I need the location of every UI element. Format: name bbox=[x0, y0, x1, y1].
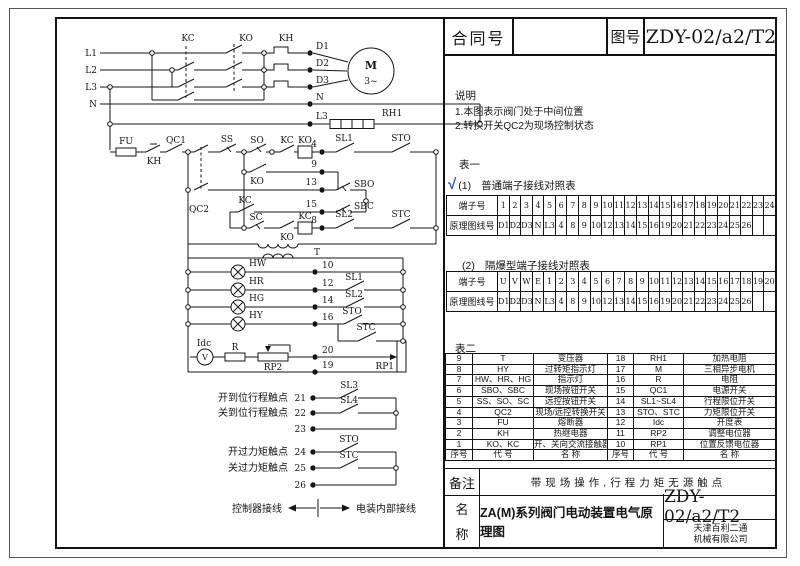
terminal-cell: 11 bbox=[660, 272, 672, 292]
component-row: 2KH热继电器11RP2调整电位器 bbox=[446, 428, 776, 439]
component-cell: 代 号 bbox=[634, 450, 684, 461]
terminal-cell: 21 bbox=[729, 196, 741, 216]
terminal-cell: 22 bbox=[694, 292, 706, 312]
table1-heading: 表一 bbox=[459, 157, 480, 172]
component-cell: 1 bbox=[446, 439, 473, 450]
terminal-cell: 16 bbox=[648, 292, 660, 312]
terminal-cell: 7 bbox=[567, 196, 579, 216]
name-label-char: 称 bbox=[455, 524, 468, 543]
component-cell: 熔断器 bbox=[534, 418, 608, 429]
company-line: 天津百利二通 bbox=[693, 523, 747, 534]
terminal-cell: 5 bbox=[590, 272, 602, 292]
component-cell: 13 bbox=[608, 407, 634, 418]
wire-row: 原理图线号 D1D2D3NL34891012131415161920212223… bbox=[447, 216, 776, 236]
component-row: 7HW、HR、HG指示灯16R电阻 bbox=[446, 375, 776, 386]
component-cell: M bbox=[634, 364, 684, 375]
component-cell: 9 bbox=[446, 354, 473, 365]
remarks-label: 备注 bbox=[445, 469, 480, 495]
component-cell: 过转矩指示灯 bbox=[534, 364, 608, 375]
component-table: 9T变压器18RH1加热电阻8HY过转矩指示灯17M三相异步电机7HW、HR、H… bbox=[445, 353, 776, 461]
terminal-cell: D3 bbox=[521, 216, 533, 236]
sub2-number: (2) bbox=[462, 260, 475, 272]
terminal-cell: 15 bbox=[660, 196, 672, 216]
terminal-cell: 24 bbox=[764, 196, 776, 216]
terminal-cell: 9 bbox=[579, 292, 591, 312]
terminal-cell: W bbox=[521, 272, 533, 292]
component-cell: 名 称 bbox=[534, 450, 608, 461]
terminal-cell: 21 bbox=[683, 292, 695, 312]
terminal-cell: 17 bbox=[729, 272, 741, 292]
terminal-cell: 2 bbox=[555, 272, 567, 292]
terminal-row: 端子号 123456789101112131415161718192021222… bbox=[447, 196, 776, 216]
terminal-cell: 26 bbox=[741, 216, 753, 236]
terminal-cell: 14 bbox=[648, 196, 660, 216]
component-cell: RP1 bbox=[634, 439, 684, 450]
terminal-cell: 18 bbox=[694, 196, 706, 216]
terminal-cell: 5 bbox=[544, 196, 556, 216]
component-cell: 3 bbox=[446, 418, 473, 429]
terminal-cell bbox=[752, 216, 764, 236]
component-cell: FU bbox=[473, 418, 534, 429]
row-label: 端子号 bbox=[447, 196, 498, 216]
contract-label: 合同号 bbox=[445, 19, 514, 54]
component-row: 9T变压器18RH1加热电阻 bbox=[446, 354, 776, 365]
terminal-cell: 13 bbox=[683, 272, 695, 292]
component-cell: 11 bbox=[608, 428, 634, 439]
component-row: 5SS、SO、SC远控按钮开关14SL1~SL4行程限位开关 bbox=[446, 396, 776, 407]
terminal-cell: 9 bbox=[579, 216, 591, 236]
drawing-frame: 合同号 图号 ZDY-02/a2/T2 说明 1.本图表示阀门处于中间位置 2.… bbox=[55, 17, 777, 549]
terminal-cell: 13 bbox=[636, 196, 648, 216]
terminal-cell: 23 bbox=[706, 216, 718, 236]
component-cell: 现场/远控转换开关 bbox=[534, 407, 608, 418]
component-cell: SBO、SBC bbox=[473, 386, 534, 397]
terminal-cell: 4 bbox=[532, 196, 544, 216]
component-cell: RH1 bbox=[634, 354, 684, 365]
terminal-cell: 12 bbox=[602, 216, 614, 236]
component-cell: 序号 bbox=[608, 450, 634, 461]
terminal-cell: 16 bbox=[717, 272, 729, 292]
component-cell: 2 bbox=[446, 428, 473, 439]
component-row: 3FU熔断器12Idc开度表 bbox=[446, 418, 776, 429]
terminal-cell: 22 bbox=[741, 196, 753, 216]
terminal-cell: 14 bbox=[694, 272, 706, 292]
terminal-cell: 22 bbox=[694, 216, 706, 236]
terminal-cell: 23 bbox=[706, 292, 718, 312]
terminal-cell: D2 bbox=[509, 216, 521, 236]
drawing-title: ZA(M)系列阀门电动装置电气原理图 bbox=[480, 494, 664, 547]
component-cell: 热继电器 bbox=[534, 428, 608, 439]
component-cell: 加热电阻 bbox=[684, 354, 776, 365]
component-cell: KO、KC bbox=[473, 439, 534, 450]
terminal-cell: 10 bbox=[590, 292, 602, 312]
terminal-cell: D3 bbox=[521, 292, 533, 312]
terminal-cell: 20 bbox=[717, 196, 729, 216]
terminal-cell: E bbox=[532, 272, 544, 292]
component-cell: KH bbox=[473, 428, 534, 439]
terminal-cell: 6 bbox=[555, 196, 567, 216]
terminal-cell: 24 bbox=[717, 216, 729, 236]
terminal-cell: 13 bbox=[613, 216, 625, 236]
note-line: 2.转换开关QC2为现场控制状态 bbox=[455, 120, 594, 134]
component-cell: 变压器 bbox=[534, 354, 608, 365]
terminal-cell: 1 bbox=[544, 272, 556, 292]
terminal-cell: 19 bbox=[660, 292, 672, 312]
terminal-cell bbox=[764, 292, 776, 312]
terminal-row: 端子号 UVWE1234567891011121314151617181920 bbox=[447, 272, 776, 292]
terminal-cell: 15 bbox=[706, 272, 718, 292]
terminal-cell: D1 bbox=[498, 216, 510, 236]
component-row: 1KO、KC开、关向交流接触器10RP1位置反馈电位器 bbox=[446, 439, 776, 450]
wire-row: 原理图线号 D1D2D3NL34891012131415161920212223… bbox=[447, 292, 776, 312]
terminal-cell: 24 bbox=[717, 292, 729, 312]
terminal-cell: L3 bbox=[544, 292, 556, 312]
drawing-no-bottom: ZDY-02/a2/T2 bbox=[664, 494, 777, 520]
terminal-cell: 23 bbox=[752, 196, 764, 216]
component-cell: SL1~SL4 bbox=[634, 396, 684, 407]
component-cell: T bbox=[473, 354, 534, 365]
notes-heading: 说明 bbox=[455, 89, 594, 103]
terminal-cell: 16 bbox=[648, 216, 660, 236]
component-cell: 开度表 bbox=[684, 418, 776, 429]
terminal-cell: 13 bbox=[613, 292, 625, 312]
terminal-cell: D1 bbox=[498, 292, 510, 312]
terminal-cell: 25 bbox=[729, 216, 741, 236]
terminal-cell: 14 bbox=[625, 216, 637, 236]
component-cell: SS、SO、SC bbox=[473, 396, 534, 407]
component-table-body: 9T变压器18RH1加热电阻8HY过转矩指示灯17M三相异步电机7HW、HR、H… bbox=[446, 354, 776, 461]
component-cell: 14 bbox=[608, 396, 634, 407]
terminal-cell: 15 bbox=[636, 292, 648, 312]
terminal-cell: 12 bbox=[602, 292, 614, 312]
sub1-text: 普通端子接线对照表 bbox=[481, 178, 576, 193]
component-cell: 15 bbox=[608, 386, 634, 397]
terminal-cell: 4 bbox=[579, 272, 591, 292]
component-cell: 17 bbox=[608, 364, 634, 375]
component-cell: QC2 bbox=[473, 407, 534, 418]
terminal-cell: 11 bbox=[613, 196, 625, 216]
terminal-cell: 8 bbox=[625, 272, 637, 292]
component-row: 序号代 号名 称序号代 号名 称 bbox=[446, 450, 776, 461]
terminal-cell: L3 bbox=[544, 216, 556, 236]
terminal-cell: 8 bbox=[567, 216, 579, 236]
component-cell: 12 bbox=[608, 418, 634, 429]
component-cell: 行程限位开关 bbox=[684, 396, 776, 407]
terminal-cell: 20 bbox=[764, 272, 776, 292]
terminal-cell: 2 bbox=[509, 196, 521, 216]
component-cell: 三相异步电机 bbox=[684, 364, 776, 375]
component-cell: 序号 bbox=[446, 450, 473, 461]
terminal-cell: 8 bbox=[579, 196, 591, 216]
terminal-cell: D2 bbox=[509, 292, 521, 312]
title-panel: 合同号 图号 ZDY-02/a2/T2 说明 1.本图表示阀门处于中间位置 2.… bbox=[443, 19, 777, 547]
component-cell: 电源开关 bbox=[684, 386, 776, 397]
terminal-cell: 19 bbox=[752, 272, 764, 292]
terminal-cell: 10 bbox=[648, 272, 660, 292]
terminal-cell: 10 bbox=[590, 216, 602, 236]
component-cell: 4 bbox=[446, 407, 473, 418]
terminal-table-explosionproof: 端子号 UVWE1234567891011121314151617181920 … bbox=[446, 271, 776, 312]
component-cell: R bbox=[634, 375, 684, 386]
terminal-cell: 3 bbox=[567, 272, 579, 292]
row-label: 原理图线号 bbox=[447, 292, 498, 312]
component-cell: STO、STC bbox=[634, 407, 684, 418]
terminal-cell: N bbox=[532, 292, 544, 312]
terminal-cell: 1 bbox=[498, 196, 510, 216]
component-cell: Idc bbox=[634, 418, 684, 429]
component-cell: 16 bbox=[608, 375, 634, 386]
terminal-cell: 20 bbox=[671, 292, 683, 312]
row-label: 原理图线号 bbox=[447, 216, 498, 236]
notes-block: 说明 1.本图表示阀门处于中间位置 2.转换开关QC2为现场控制状态 bbox=[455, 89, 594, 134]
terminal-cell: 20 bbox=[671, 216, 683, 236]
note-line: 1.本图表示阀门处于中间位置 bbox=[455, 106, 594, 120]
terminal-cell: 8 bbox=[567, 292, 579, 312]
terminal-cell: 9 bbox=[590, 196, 602, 216]
component-cell: 5 bbox=[446, 396, 473, 407]
terminal-cell: 7 bbox=[613, 272, 625, 292]
terminal-cell: 18 bbox=[741, 272, 753, 292]
component-cell: 18 bbox=[608, 354, 634, 365]
terminal-cell: 16 bbox=[671, 196, 683, 216]
terminal-cell: 15 bbox=[636, 216, 648, 236]
component-cell: 代 号 bbox=[473, 450, 534, 461]
company-name: 天津百利二通 机械有限公司 bbox=[664, 520, 777, 547]
row-label: 端子号 bbox=[447, 272, 498, 292]
drawing-no-label: 图号 bbox=[608, 19, 645, 54]
terminal-cell bbox=[764, 216, 776, 236]
drawing-no-value: ZDY-02/a2/T2 bbox=[645, 19, 777, 54]
sub1-number: (1) bbox=[458, 180, 471, 192]
terminal-cell: 19 bbox=[660, 216, 672, 236]
component-cell: HY bbox=[473, 364, 534, 375]
terminal-cell: 26 bbox=[741, 292, 753, 312]
component-cell: 电阻 bbox=[684, 375, 776, 386]
terminal-cell: 12 bbox=[625, 196, 637, 216]
component-cell: 调整电位器 bbox=[684, 428, 776, 439]
contract-value bbox=[514, 19, 608, 54]
terminal-table-ordinary: 端子号 123456789101112131415161718192021222… bbox=[446, 195, 776, 236]
component-row: 4QC2现场/远控转换开关13STO、STC力矩限位开关 bbox=[446, 407, 776, 418]
component-cell: 名 称 bbox=[684, 450, 776, 461]
component-cell: 开、关向交流接触器 bbox=[534, 439, 608, 450]
table1-sub1-title: √ (1) 普通端子接线对照表 bbox=[448, 177, 576, 194]
component-cell: HW、HR、HG bbox=[473, 375, 534, 386]
terminal-cell: 3 bbox=[521, 196, 533, 216]
component-row: 6SBO、SBC现场按钮开关15QC1电源开关 bbox=[446, 386, 776, 397]
component-cell: RP2 bbox=[634, 428, 684, 439]
terminal-cell bbox=[752, 292, 764, 312]
component-cell: 位置反馈电位器 bbox=[684, 439, 776, 450]
name-row: 名 称 ZA(M)系列阀门电动装置电气原理图 ZDY-02/a2/T2 天津百利… bbox=[445, 494, 777, 547]
component-cell: 现场按钮开关 bbox=[534, 386, 608, 397]
component-cell: 7 bbox=[446, 375, 473, 386]
component-cell: QC1 bbox=[634, 386, 684, 397]
component-cell: 力矩限位开关 bbox=[684, 407, 776, 418]
terminal-cell: 25 bbox=[729, 292, 741, 312]
name-label-char: 名 bbox=[455, 499, 468, 518]
terminal-cell: U bbox=[498, 272, 510, 292]
terminal-cell: 4 bbox=[555, 292, 567, 312]
terminal-cell: V bbox=[509, 272, 521, 292]
component-cell: 6 bbox=[446, 386, 473, 397]
terminal-cell: 4 bbox=[555, 216, 567, 236]
name-label: 名 称 bbox=[445, 494, 480, 547]
component-cell: 指示灯 bbox=[534, 375, 608, 386]
terminal-cell: 10 bbox=[602, 196, 614, 216]
component-cell: 10 bbox=[608, 439, 634, 450]
contract-drawing-row: 合同号 图号 ZDY-02/a2/T2 bbox=[445, 19, 777, 56]
company-line: 机械有限公司 bbox=[693, 534, 747, 545]
component-cell: 远控按钮开关 bbox=[534, 396, 608, 407]
terminal-cell: 12 bbox=[671, 272, 683, 292]
terminal-cell: 21 bbox=[683, 216, 695, 236]
component-row: 8HY过转矩指示灯17M三相异步电机 bbox=[446, 364, 776, 375]
terminal-cell: 14 bbox=[625, 292, 637, 312]
terminal-cell: N bbox=[532, 216, 544, 236]
terminal-cell: 6 bbox=[602, 272, 614, 292]
titleblock-right: ZDY-02/a2/T2 天津百利二通 机械有限公司 bbox=[664, 494, 777, 547]
component-cell: 8 bbox=[446, 364, 473, 375]
terminal-cell: 19 bbox=[706, 196, 718, 216]
terminal-cell: 9 bbox=[636, 272, 648, 292]
terminal-cell: 17 bbox=[683, 196, 695, 216]
check-mark-icon: √ bbox=[448, 176, 456, 193]
